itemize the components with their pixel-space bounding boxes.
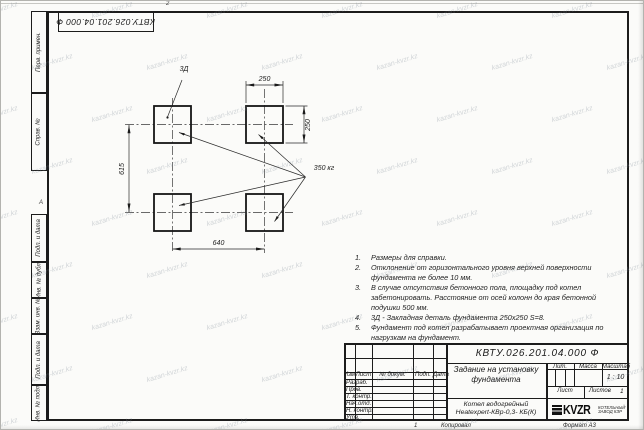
title-block-line xyxy=(546,386,629,387)
tb-row-tkontr: Т. контр. xyxy=(346,394,372,401)
document-title-line2: фундамента xyxy=(448,375,544,385)
kvzr-logo-caption: КОТЕЛЬНЫЙ ЗАВОД КЗР xyxy=(598,405,625,414)
title-block-line xyxy=(565,369,566,386)
notes-block: 1.Размеры для справки. 2.Отклонение от г… xyxy=(355,253,611,343)
title-block-line xyxy=(555,369,556,386)
tb-scale-label: Масштаб xyxy=(602,364,629,371)
kvzr-logo-icon xyxy=(552,405,562,415)
footer-format-label: Формат А3 xyxy=(563,423,596,429)
note-item: 3.В случае отсутствия бетонного пола, пл… xyxy=(355,283,611,313)
title-block-line xyxy=(413,343,414,421)
title-block-line xyxy=(433,343,434,421)
pad-label-3d: 3Д xyxy=(173,65,195,75)
leader-weight-top-right xyxy=(259,135,306,178)
note-item: 5.Фундамент под котел разрабатывает прое… xyxy=(355,323,611,343)
note-number: 3. xyxy=(355,283,371,313)
title-block-line xyxy=(344,358,446,359)
note-text: Размеры для справки. xyxy=(371,253,609,263)
tb-scale-value: 1 : 10 xyxy=(602,372,629,384)
product-name: Котел водогрейный Heatexpert-КВр-0,3- КБ… xyxy=(448,401,544,418)
tb-row-utv: Утв. xyxy=(346,415,360,422)
tb-mass-label: Масса xyxy=(574,364,602,371)
note-text: Отклонение от горизонтального уровня вер… xyxy=(371,263,609,283)
title-block-line xyxy=(344,343,629,345)
note-item: 4.3Д - Закладная деталь фундамента 250х2… xyxy=(355,313,611,323)
note-item: 1.Размеры для справки. xyxy=(355,253,611,263)
note-number: 1. xyxy=(355,253,371,263)
leader-weight-bottom-left xyxy=(179,177,306,206)
note-number: 4. xyxy=(355,313,371,323)
tb-col-list: Лист xyxy=(355,372,372,379)
dim-text-640: 640 xyxy=(198,239,239,249)
leader-pad-dot xyxy=(166,116,168,118)
tb-row-nachotd: Нач.отд. xyxy=(346,401,371,408)
tb-row-prov: Пров. xyxy=(346,387,362,394)
company-logo: KVZR КОТЕЛЬНЫЙ ЗАВОД КЗР xyxy=(552,400,627,419)
tb-sheets-label: Листов xyxy=(589,388,611,395)
product-name-line2: Heatexpert-КВр-0,3- КБ(К) xyxy=(448,409,544,418)
drawing-sheet: kazan-kvzr.kzkazan-kvzr.kzkazan-kvzr.kzk… xyxy=(0,0,644,430)
tb-col-data: Дата xyxy=(433,372,446,379)
leader-weight-bottom-right xyxy=(275,177,306,222)
dim-text-250-right: 250 xyxy=(304,105,314,145)
dim-text-250-top: 250 xyxy=(244,75,285,85)
tb-col-podp: Подп. xyxy=(413,372,433,379)
note-text: Фундамент под котел разрабатывает проект… xyxy=(371,323,609,343)
tb-sheet-label: Лист xyxy=(547,388,583,395)
tb-col-izm: Изм xyxy=(344,372,356,379)
tb-col-docnum: № докум. xyxy=(372,372,413,379)
kvzr-caption-line1: КОТЕЛЬНЫЙ xyxy=(598,405,625,409)
footer-copied-label: Копировал xyxy=(441,423,471,429)
kvzr-logo-text: KVZR xyxy=(563,402,590,417)
product-name-line1: Котел водогрейный xyxy=(448,401,544,410)
title-block-line xyxy=(446,398,629,399)
title-block-designation: КВТУ.026.201.04.000 Ф xyxy=(446,346,629,362)
document-title-line1: Задание на установку xyxy=(448,365,544,375)
document-title: Задание на установку фундамента xyxy=(448,365,544,385)
kvzr-caption-line2: ЗАВОД КЗР xyxy=(598,410,625,414)
note-text: В случае отсутствия бетонного пола, площ… xyxy=(371,283,609,313)
note-text: 3Д - Закладная деталь фундамента 250х250… xyxy=(371,313,609,323)
note-item: 2.Отклонение от горизонтального уровня в… xyxy=(355,263,611,283)
leader-weight-top-left xyxy=(179,133,306,178)
note-number: 2. xyxy=(355,263,371,283)
tb-row-razrab: Разраб. xyxy=(346,380,368,387)
title-block-line xyxy=(584,386,585,399)
weight-label: 350 кг xyxy=(306,164,342,174)
leader-pad-label xyxy=(168,80,183,117)
footer-copy-number: 1 xyxy=(414,423,417,429)
tb-row-nkontr: Н. контр. xyxy=(346,408,373,415)
tb-sheets-value: 1 xyxy=(620,388,624,395)
note-number: 5. xyxy=(355,323,371,343)
tb-lit-label: Лит. xyxy=(546,364,574,371)
dim-text-615: 615 xyxy=(118,149,128,189)
